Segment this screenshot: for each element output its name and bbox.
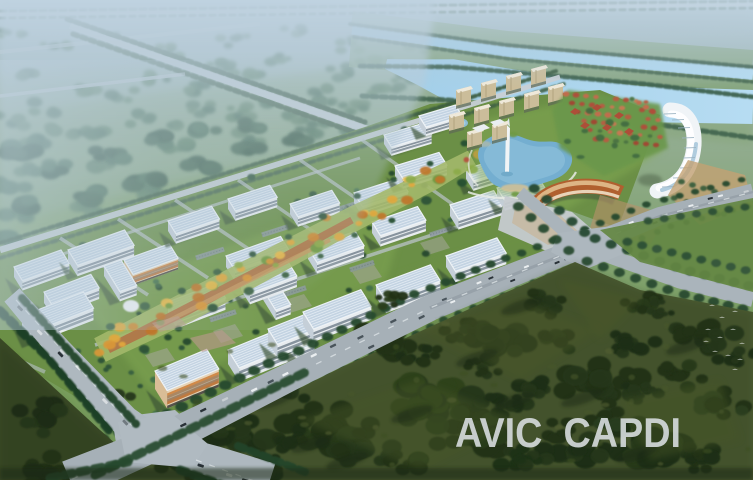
svg-text:AVIC CAPDI: AVIC CAPDI: [455, 409, 681, 456]
